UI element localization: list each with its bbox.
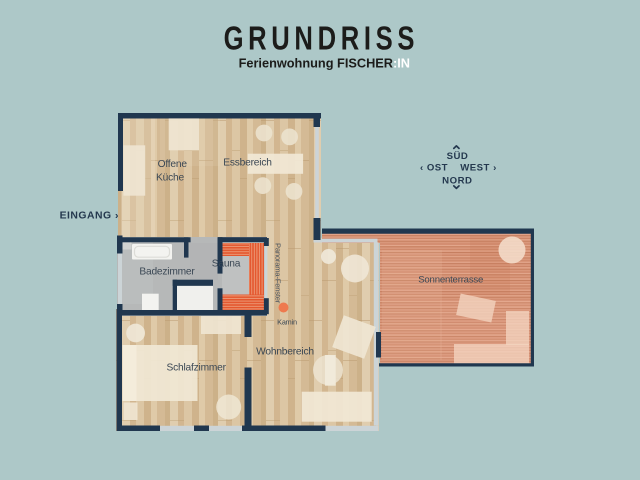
svg-text:Badezimmer: Badezimmer bbox=[139, 267, 195, 278]
svg-text:‹ OST: ‹ OST bbox=[420, 162, 448, 173]
svg-text:Sauna: Sauna bbox=[212, 259, 241, 270]
svg-text:Küche: Küche bbox=[156, 173, 184, 184]
svg-text:NORD: NORD bbox=[442, 176, 472, 187]
svg-text:WEST ›: WEST › bbox=[460, 162, 497, 173]
svg-text:Ferienwohnung FISCHER:IN: Ferienwohnung FISCHER:IN bbox=[239, 56, 410, 71]
svg-text:Offene: Offene bbox=[158, 159, 188, 170]
svg-text:Essbereich: Essbereich bbox=[223, 158, 271, 169]
svg-text:Panorama-Fenster: Panorama-Fenster bbox=[274, 243, 283, 304]
svg-text:Kamin: Kamin bbox=[277, 318, 297, 327]
svg-text:GRUNDRISS: GRUNDRISS bbox=[224, 20, 419, 57]
svg-text:Wohnbereich: Wohnbereich bbox=[256, 347, 314, 358]
svg-text:Schlafzimmer: Schlafzimmer bbox=[167, 363, 227, 374]
svg-text:Sonnenterrasse: Sonnenterrasse bbox=[418, 275, 483, 286]
svg-text:EINGANG ›: EINGANG › bbox=[60, 211, 119, 222]
svg-text:SÜD: SÜD bbox=[447, 151, 469, 162]
